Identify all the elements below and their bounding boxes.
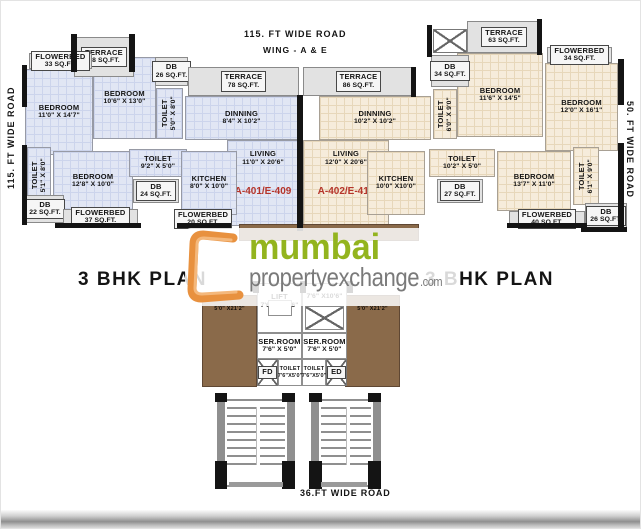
room-label: TERRACE86 SQ.FT. — [336, 71, 382, 91]
wall-segment — [618, 197, 624, 227]
room-label: TOILET7'6"X5'0" — [278, 366, 303, 379]
room-toilet-e3: TOILET6'1" X 9'0" — [573, 147, 599, 205]
room-toilet-e2: TOILET10'2" X 5'0" — [429, 149, 495, 177]
room-label: BEDROOM11'6" X 14'5" — [479, 87, 521, 103]
wall-segment — [537, 19, 542, 55]
room-label: BEDROOM11'0" X 14'7" — [38, 104, 80, 120]
room-duct-right: 5'0" X21'2" — [345, 295, 400, 387]
unit-number: A-401/E-409 — [228, 186, 298, 197]
wall-segment — [368, 461, 381, 489]
road-label-right: 50. FT WIDE ROAD — [625, 101, 635, 198]
wall-segment — [297, 95, 303, 231]
room-db-34: DB34 SQ.FT. — [431, 55, 469, 87]
room-label: LIVING11'0" X 20'6" — [242, 150, 284, 166]
wing-label: WING - A & E — [263, 45, 328, 55]
floor-plan-page: 115. FT WIDE ROAD WING - A & E 115. FT W… — [0, 0, 641, 529]
room-db-24: DB24 SQ.FT. — [133, 179, 179, 203]
room-label: DB22 SQ.FT. — [25, 199, 65, 219]
room-label: DB26 SQ.FT. — [152, 61, 192, 81]
room-db-27: DB27 SQ.FT. — [437, 179, 483, 203]
wall-segment — [411, 67, 416, 97]
room-label: DINNING8'4" X 10'2" — [222, 110, 260, 126]
room-label: BEDROOM12'8" X 10'0" — [72, 173, 114, 189]
room-label: ED — [327, 366, 346, 379]
wall-segment — [581, 227, 627, 232]
stair-treads — [321, 407, 371, 465]
room-terrace-86: TERRACE86 SQ.FT. — [303, 67, 414, 96]
watermark-domain-text: propertyexchange — [249, 262, 419, 292]
room-living-a: LIVING11'0" X 20'6"A-401/E-409 — [227, 140, 299, 226]
room-toilet-sm-right: TOILET7'6"X5'0" — [302, 359, 326, 386]
room-label: TOILET6'1" X 9'0" — [578, 159, 594, 193]
room-flowerbed-34: FLOWERBED34 SQ.FT. — [547, 47, 612, 63]
room-terrace-63: TERRACE63 SQ.FT. — [467, 21, 541, 53]
road-label-bottom: 36.FT WIDE ROAD — [300, 488, 391, 498]
brand-bracket-icon — [187, 230, 247, 304]
room-db-22: DB22 SQ.FT. — [26, 195, 64, 223]
room-label: DB34 SQ.FT. — [430, 61, 470, 81]
room-label: 5'0" X21'2" — [214, 306, 245, 312]
wall-segment — [618, 59, 624, 105]
bottom-shadow-bar — [1, 510, 641, 529]
wall-segment — [321, 482, 367, 487]
room-kitchen-e: KITCHEN10'0" X10'0" — [367, 151, 425, 215]
room-label: TOILET7'6"X5'0" — [302, 366, 327, 379]
wall-segment — [507, 223, 587, 228]
wall-segment — [618, 143, 624, 203]
room-label: DB24 SQ.FT. — [136, 181, 176, 201]
room-bedroom-a1: BEDROOM11'0" X 14'7" — [25, 69, 93, 155]
room-toilet-a1: TOILET5'0" X 8'0" — [156, 88, 183, 139]
wall-segment — [282, 461, 295, 489]
vent-box — [433, 29, 467, 53]
room-label: BEDROOM12'0" X 16'1" — [561, 99, 603, 115]
room-label: KITCHEN8'0" X 10'0" — [190, 175, 228, 191]
room-label: DB27 SQ.FT. — [440, 181, 480, 201]
room-label: BEDROOM10'6" X 13'0" — [104, 90, 146, 106]
stair-treads — [227, 407, 285, 465]
room-toilet-e1: TOILET6'0" X 9'0" — [433, 89, 457, 139]
room-serroom-right: SER.ROOM7'6" X 5'0" — [302, 333, 347, 359]
room-label: TOILET5'1" X 8'0" — [31, 158, 47, 192]
room-dinning-a: DINNING8'4" X 10'2" — [185, 96, 298, 140]
room-label: FD — [258, 366, 276, 379]
room-toilet-sm-left: TOILET7'6"X5'0" — [278, 359, 302, 386]
room-db-26-a: DB26 SQ.FT. — [155, 57, 188, 86]
road-label-left: 115. FT WIDE ROAD — [6, 86, 16, 189]
room-label: KITCHEN10'0" X10'0" — [376, 175, 416, 191]
room-toilet-a3: TOILET9'2" X 5'0" — [129, 149, 187, 177]
room-label: BEDROOM13'7" X 11'0" — [513, 173, 555, 189]
room-label: LIVING12'0" X 20'6" — [325, 150, 367, 166]
room-ed: ED — [326, 359, 347, 386]
room-terrace-78: TERRACE78 SQ.FT. — [188, 67, 299, 96]
room-label: 5'0" X21'2" — [357, 306, 388, 312]
room-label: TOILET6'0" X 9'0" — [437, 97, 453, 131]
room-label: TOILET10'2" X 5'0" — [443, 155, 481, 171]
watermark: mumbai propertyexchange.com — [185, 228, 457, 306]
road-label-top: 115. FT WIDE ROAD — [244, 29, 347, 39]
wall-segment — [55, 223, 141, 228]
watermark-tld: .com — [420, 274, 442, 289]
wall-segment — [71, 34, 77, 72]
wall-segment — [22, 195, 27, 225]
room-label: FLOWERBED33 SQ.FT. — [31, 51, 89, 71]
room-label: FLOWERBED34 SQ.FT. — [550, 45, 608, 65]
room-bedroom-e3: BEDROOM13'7" X 11'0" — [497, 151, 571, 211]
room-bedroom-e1: BEDROOM11'6" X 14'5" — [457, 53, 543, 137]
room-label: DINNING10'2" X 10'2" — [354, 110, 396, 126]
room-label: TOILET9'2" X 5'0" — [141, 155, 175, 171]
wall-segment — [215, 393, 227, 402]
wall-segment — [229, 482, 283, 487]
duct-cross — [305, 306, 344, 330]
room-label: SER.ROOM7'6" X 5'0" — [303, 338, 345, 354]
room-label: TERRACE63 SQ.FT. — [481, 27, 527, 47]
watermark-domain-word: propertyexchange.com — [249, 264, 442, 291]
room-flowerbed-33: FLOWERBED33 SQ.FT. — [29, 53, 92, 69]
room-bedroom-e2: BEDROOM12'0" X 16'1" — [545, 63, 618, 151]
room-bedroom-a3: BEDROOM12'8" X 10'0" — [53, 151, 133, 211]
wall-segment — [22, 145, 27, 201]
room-label: SER.ROOM7'6" X 5'0" — [258, 338, 300, 354]
watermark-brand-word: mumbai — [249, 230, 465, 264]
room-kitchen-a: KITCHEN8'0" X 10'0" — [181, 151, 237, 215]
room-label: TERRACE78 SQ.FT. — [221, 71, 267, 91]
room-fd: FD — [257, 359, 278, 386]
wall-segment — [215, 461, 227, 489]
wall-segment — [22, 65, 27, 107]
wall-segment — [368, 393, 381, 402]
watermark-text: mumbai propertyexchange.com — [249, 230, 476, 291]
wall-segment — [129, 34, 135, 72]
room-dinning-e: DINNING10'2" X 10'2" — [319, 96, 431, 140]
room-duct-left: 5'0" X21'2" — [202, 295, 257, 387]
wall-segment — [309, 393, 322, 402]
wall-segment — [282, 393, 295, 402]
room-label: TOILET5'0" X 8'0" — [161, 96, 177, 130]
wall-segment — [427, 25, 432, 57]
room-serroom-left: SER.ROOM7'6" X 5'0" — [257, 333, 302, 359]
